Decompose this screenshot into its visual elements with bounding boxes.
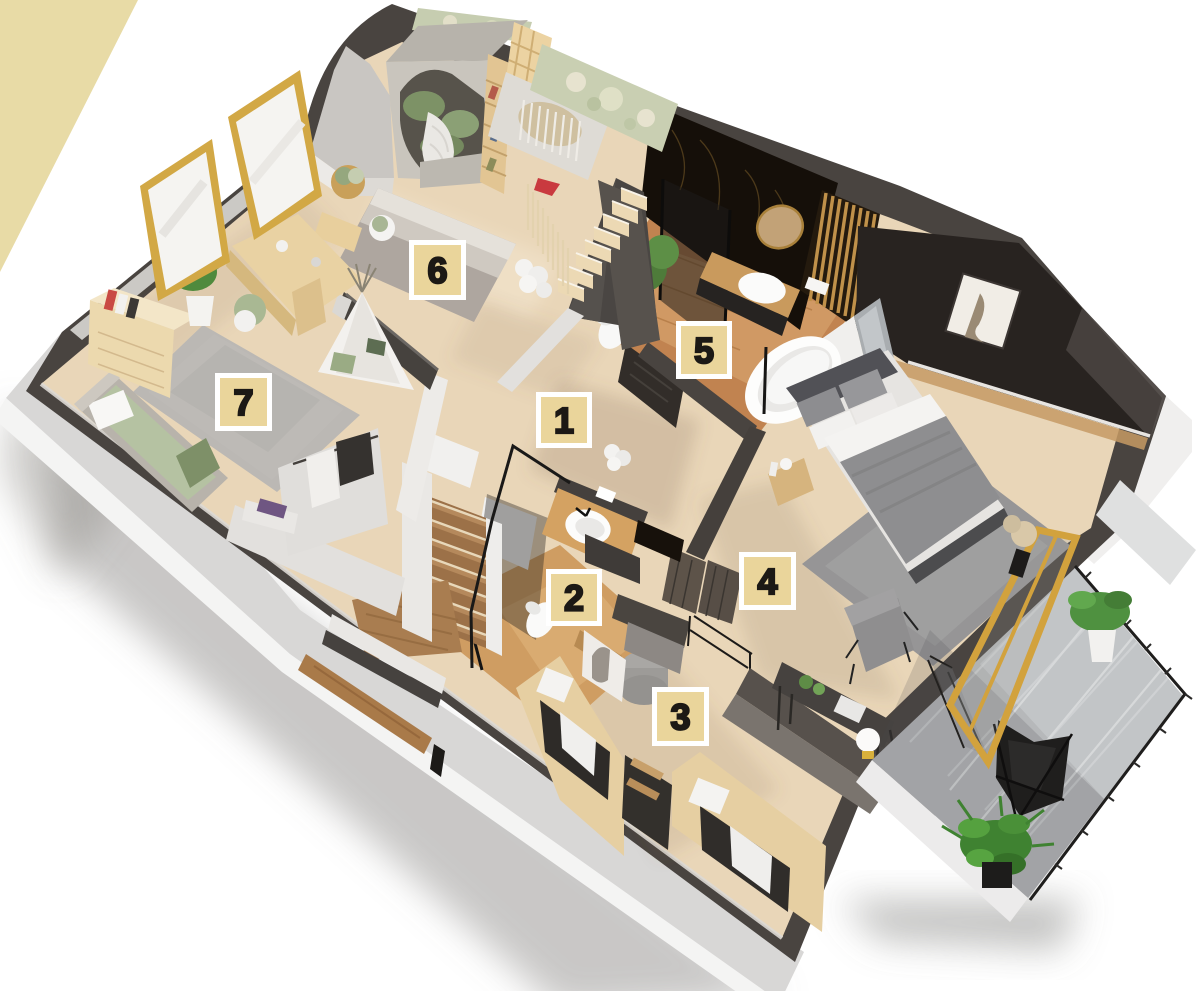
svg-text:7: 7 xyxy=(233,382,253,423)
svg-text:4: 4 xyxy=(757,561,777,602)
svg-text:1: 1 xyxy=(554,400,574,441)
svg-text:6: 6 xyxy=(427,250,447,291)
svg-text:3: 3 xyxy=(670,697,690,738)
svg-text:5: 5 xyxy=(694,330,714,371)
svg-text:2: 2 xyxy=(564,578,584,619)
